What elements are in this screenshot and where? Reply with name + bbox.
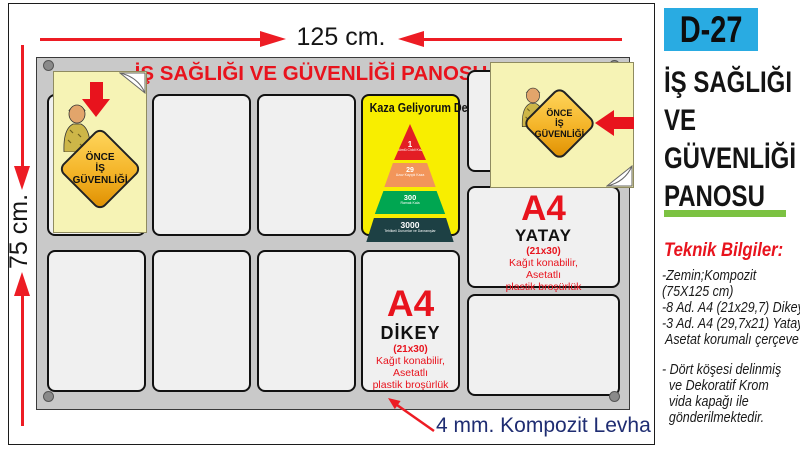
a4-dikey-desc: Kağıt konabilir, bbox=[363, 355, 458, 367]
pyramid-level-2: 29 Uzuv Kayıplı Kaza bbox=[363, 163, 457, 187]
pyramid-label: Ramak Kala bbox=[363, 202, 457, 206]
tech-info-line: -Zemin;Kompozit bbox=[662, 268, 782, 284]
product-code-badge: D-27 bbox=[664, 8, 758, 51]
a4-yatay-size: (21x30) bbox=[469, 246, 618, 257]
tech-info-line: gönderilmektedir. bbox=[662, 410, 782, 426]
tech-info-line: -8 Ad. A4 (21x29,7) Dikey bbox=[662, 300, 782, 316]
a4-yatay-desc: plastik broşürlük bbox=[469, 281, 618, 293]
tech-info-line: - Dört köşesi delinmiş bbox=[662, 362, 782, 378]
a4-dikey-size: (21x30) bbox=[363, 344, 458, 355]
sign-text: ÖNCE bbox=[86, 152, 115, 164]
material-label: 4 mm. Kompozit Levha bbox=[436, 414, 651, 438]
a4-yatay-code: A4 bbox=[469, 192, 618, 226]
a4-pocket-vertical bbox=[152, 250, 251, 392]
arrow-left-icon bbox=[398, 31, 424, 47]
tech-info-line: -3 Ad. A4 (29,7x21) Yatay bbox=[662, 316, 782, 332]
a4-dikey-desc: Asetatlı bbox=[363, 367, 458, 379]
arrow-left-icon bbox=[614, 117, 634, 129]
pyramid-level-1: 1 Ölümlü Ciddi Kaza bbox=[363, 124, 457, 160]
arrow-right-icon bbox=[260, 31, 286, 47]
arrow-left-icon bbox=[595, 110, 614, 136]
accident-pyramid: 1 Ölümlü Ciddi Kaza 29 Uzuv Kayıplı Kaza… bbox=[363, 122, 457, 234]
asetat-sticker-horizontal: ÖNCE İŞ GÜVENLİĞİ bbox=[490, 62, 634, 188]
product-code: D-27 bbox=[680, 9, 743, 51]
poster-title: Kaza Geliyorum Der! bbox=[370, 101, 452, 115]
a4-pocket-vertical bbox=[257, 250, 356, 392]
tech-info-line: Asetat korumalı çerçeve bbox=[662, 332, 782, 348]
pyramid-level-4: 3000 Tehlikeli Durumlar ve Davranışlar bbox=[363, 218, 457, 242]
sidebar-title-line: İŞ SAĞLIĞI bbox=[664, 64, 773, 102]
width-dimension-label: 125 cm. bbox=[288, 23, 394, 52]
a4-yatay-info-pocket: A4 YATAY (21x30) Kağıt konabilir, Asetat… bbox=[467, 186, 620, 288]
pyramid-value: 1 bbox=[363, 124, 457, 149]
title-underline bbox=[664, 210, 786, 217]
tech-info-line: ve Dekoratif Krom bbox=[662, 378, 782, 394]
a4-yatay-orientation: YATAY bbox=[469, 226, 618, 246]
tech-info-line bbox=[662, 348, 782, 362]
width-dimension-line-left bbox=[40, 38, 260, 41]
height-dimension-line-top bbox=[21, 45, 24, 166]
tech-info-line: vida kapağı ile bbox=[662, 394, 782, 410]
a4-dikey-info-pocket: A4 DİKEY (21x30) Kağıt konabilir, Asetat… bbox=[361, 250, 460, 392]
arrow-down-icon bbox=[90, 82, 103, 99]
screw-icon bbox=[43, 60, 54, 71]
screw-icon bbox=[609, 391, 620, 402]
sign-text: İŞ bbox=[95, 163, 104, 175]
tech-info-line: (75X125 cm) bbox=[662, 284, 782, 300]
height-dimension-line-bottom bbox=[21, 296, 24, 426]
accident-pyramid-poster: Kaza Geliyorum Der! 1 Ölümlü Ciddi Kaza … bbox=[361, 94, 460, 236]
a4-pocket-vertical bbox=[152, 94, 251, 236]
sign-text: GÜVENLİĞİ bbox=[72, 175, 127, 187]
sidebar-title-line: GÜVENLİĞİ bbox=[664, 140, 773, 178]
sidebar-title-line: VE bbox=[664, 102, 773, 140]
page-curl-icon bbox=[606, 165, 633, 187]
a4-pocket-vertical bbox=[47, 250, 146, 392]
sign-text: GÜVENLİĞİ bbox=[535, 129, 585, 140]
pyramid-label: Ölümlü Ciddi Kaza bbox=[363, 149, 457, 153]
height-dimension-label: 75 cm. bbox=[5, 192, 34, 270]
sidebar-title: İŞ SAĞLIĞI VE GÜVENLİĞİ PANOSU bbox=[664, 64, 800, 216]
sign-text: İŞ bbox=[555, 118, 564, 129]
tech-info-title: Teknik Bilgiler: bbox=[664, 240, 783, 262]
pyramid-label: Tehlikeli Durumlar ve Davranışlar bbox=[363, 230, 457, 234]
sign-text: ÖNCE bbox=[546, 108, 572, 119]
asetat-sticker-vertical: ÖNCE İŞ GÜVENLİĞİ bbox=[53, 71, 147, 233]
page-curl-icon bbox=[119, 72, 146, 94]
a4-dikey-desc: plastik broşürlük bbox=[363, 379, 458, 391]
screw-icon bbox=[43, 391, 54, 402]
arrow-up-icon bbox=[14, 272, 30, 296]
board-title: İŞ SAĞLIĞI VE GÜVENLİĞİ PANOSU bbox=[148, 60, 474, 88]
width-dimension-line-right bbox=[424, 38, 622, 41]
a4-pocket-horizontal bbox=[467, 294, 620, 396]
a4-dikey-code: A4 bbox=[363, 286, 458, 322]
a4-yatay-desc: Kağıt konabilir, bbox=[469, 257, 618, 269]
pyramid-label: Uzuv Kayıplı Kaza bbox=[363, 174, 457, 178]
pyramid-level-3: 300 Ramak Kala bbox=[363, 191, 457, 214]
a4-dikey-orientation: DİKEY bbox=[363, 322, 458, 344]
a4-yatay-desc: Asetatlı bbox=[469, 269, 618, 281]
tech-info-list: -Zemin;Kompozit (75X125 cm) -8 Ad. A4 (2… bbox=[662, 268, 800, 426]
page: 125 cm. 75 cm. İŞ SAĞLIĞI VE GÜVENLİĞİ P… bbox=[0, 0, 800, 452]
a4-pocket-vertical bbox=[257, 94, 356, 236]
arrow-down-icon bbox=[14, 166, 30, 190]
